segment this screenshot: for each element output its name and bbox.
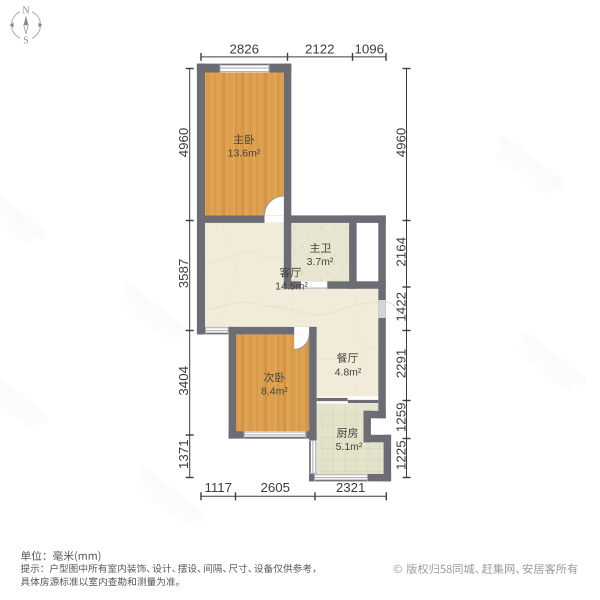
svg-text:2605: 2605: [260, 480, 290, 495]
svg-text:1259: 1259: [393, 403, 408, 433]
svg-text:2291: 2291: [393, 349, 408, 379]
svg-text:5.1m²: 5.1m²: [336, 441, 363, 453]
svg-text:1422: 1422: [393, 292, 408, 322]
svg-text:13.6m²: 13.6m²: [228, 148, 261, 160]
svg-text:2321: 2321: [336, 480, 366, 495]
svg-text:1225: 1225: [393, 440, 408, 470]
svg-text:S: S: [23, 36, 29, 47]
svg-text:14.5m²: 14.5m²: [275, 281, 308, 293]
svg-text:4960: 4960: [176, 128, 191, 158]
svg-text:2122: 2122: [305, 42, 335, 57]
svg-text:3.7m²: 3.7m²: [307, 256, 334, 268]
svg-text:3404: 3404: [176, 366, 191, 396]
svg-text:3587: 3587: [176, 259, 191, 289]
svg-text:N: N: [22, 6, 29, 17]
svg-text:8.4m²: 8.4m²: [261, 386, 288, 398]
svg-text:2164: 2164: [393, 237, 408, 267]
svg-text:1117: 1117: [204, 480, 232, 495]
svg-text:4960: 4960: [393, 128, 408, 158]
svg-text:2826: 2826: [229, 42, 259, 57]
svg-text:1371: 1371: [176, 439, 191, 469]
svg-text:4.8m²: 4.8m²: [335, 367, 362, 379]
svg-text:1096: 1096: [354, 42, 384, 57]
